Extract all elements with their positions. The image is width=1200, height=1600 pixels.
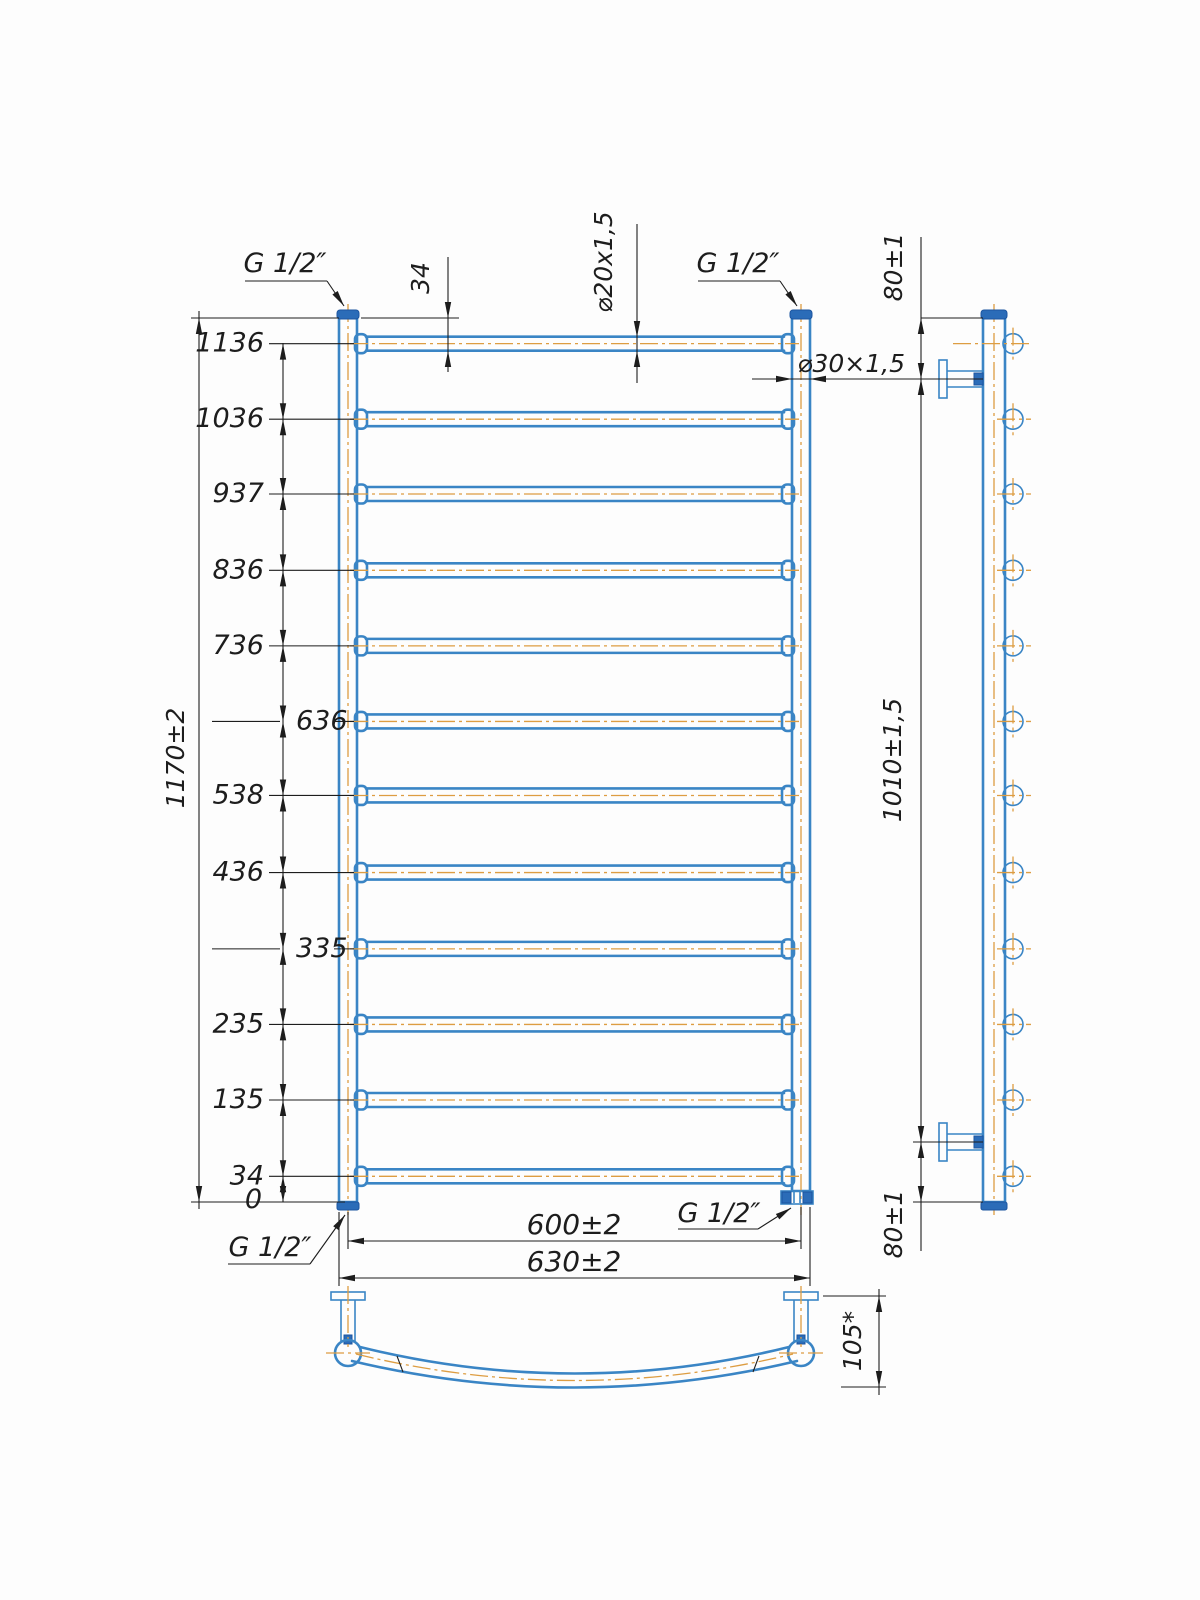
thread-label-bottom-left: G 1/2″ [228,1232,311,1263]
side-span-label: 1010±1,5 [878,698,907,822]
rung-height-label: 135 [212,1084,264,1115]
depth-label: 105* [838,1311,867,1371]
towel-radiator-drawing: 1170±2 34 ⌀20x1,5 ⌀30×1,5 600±2 630±2 G … [0,0,1200,1600]
rung-height-label: 736 [212,630,264,661]
bottom-left-fitting [337,1202,359,1210]
axis-width-label: 600±2 [527,1208,622,1241]
curved-rung-outer [360,1347,789,1374]
thread-label-top-left: G 1/2″ [243,248,326,279]
thread-label-bottom-right: G 1/2″ [677,1198,760,1229]
rung-height-label: 1036 [195,403,264,434]
side-bottom-fitting [981,1202,1007,1210]
bottom-view [326,1286,823,1388]
dimension-labels: 1170±2 34 ⌀20x1,5 ⌀30×1,5 600±2 630±2 G … [161,211,908,1371]
top-left-fitting [337,310,359,319]
rung-height-label: 538 [212,779,264,810]
thread-label-top-right: G 1/2″ [696,248,779,279]
curved-rung-centerline [356,1354,793,1381]
rung-height-label: 1136 [195,328,264,359]
overall-width-label: 630±2 [527,1245,622,1278]
side-top-fitting [981,310,1007,319]
rung-height-label: 636 [296,705,348,736]
rung-height-label: 436 [212,857,264,888]
drawing-svg: 1170±2 34 ⌀20x1,5 ⌀30×1,5 600±2 630±2 G … [0,0,1200,1600]
overall-height-label: 1170±2 [161,708,190,808]
top-offset-label: 34 [406,262,435,294]
rung-height-label: 34 [230,1160,264,1191]
rung-height-label: 836 [212,554,264,585]
post-tube-label: ⌀30×1,5 [797,349,905,378]
side-bottom-offset-label: 80±1 [879,1190,908,1259]
rung-cross-sections [953,328,1031,1193]
rung-height-label: 335 [296,933,348,964]
rung-tube-label: ⌀20x1,5 [589,211,618,312]
side-view [939,304,1031,1215]
bottom-right-union-fitting [781,1191,813,1204]
rungs [350,334,799,1186]
front-view [337,304,813,1215]
top-right-fitting [790,310,812,319]
rung-height-label: 937 [212,478,264,509]
side-top-offset-label: 80±1 [879,233,908,302]
rung-height-label: 235 [212,1008,264,1039]
